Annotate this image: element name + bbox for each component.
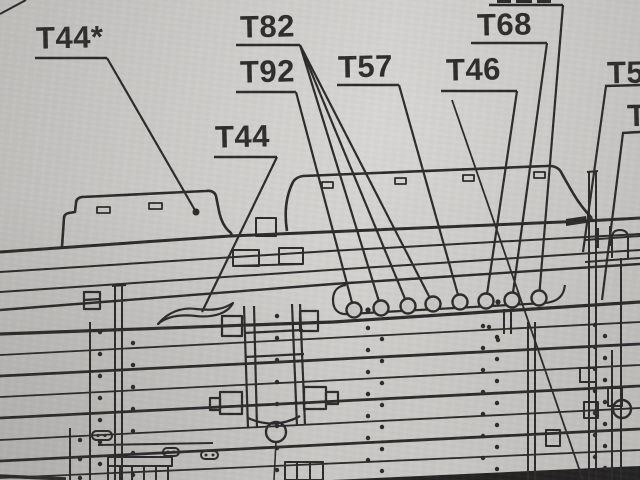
deckhouse-tab — [395, 178, 406, 184]
deckhouse-notch — [97, 207, 110, 213]
leader-clipped-top — [489, 0, 563, 298]
part-label-t57: T57 — [338, 50, 394, 82]
leader-lines — [35, 0, 640, 312]
part-label-t44-star: T44* — [36, 21, 104, 53]
deckhouse-tab — [322, 182, 333, 188]
boot-stripe-band — [332, 466, 640, 480]
porthole — [532, 291, 547, 306]
deckhouse-tab — [463, 175, 474, 181]
part-label-t92: T92 — [240, 55, 296, 87]
ship-profile-drawing — [0, 0, 640, 480]
porthole — [505, 293, 520, 308]
leader-dot — [193, 209, 200, 216]
porthole — [374, 301, 389, 316]
deckhouse-tab — [534, 172, 545, 178]
leader-t46 — [441, 91, 517, 301]
porthole — [426, 297, 441, 312]
part-label-right-mid-clipped: T — [627, 100, 640, 131]
deck-bar — [566, 216, 586, 226]
rivet — [365, 307, 370, 312]
part-label-t44: T44 — [215, 120, 271, 152]
part-label-right-top-clipped: T5 — [607, 57, 640, 89]
leader-t57 — [337, 85, 460, 302]
part-label-t68: T68 — [477, 8, 533, 40]
porthole — [453, 295, 468, 310]
rivet — [495, 299, 500, 304]
porthole — [401, 299, 416, 314]
part-label-t82: T82 — [240, 10, 296, 42]
part-label-t46: T46 — [446, 53, 502, 85]
porthole — [479, 294, 494, 309]
deckhouse-notch — [149, 203, 162, 209]
center-davit — [210, 304, 338, 480]
paper-corner-line — [0, 0, 26, 14]
oval-cleat — [201, 451, 218, 459]
porthole — [347, 303, 362, 318]
blueprint-photo: T44* T82 T92 T44 T57 T46 T68 T5 T — [0, 0, 640, 480]
